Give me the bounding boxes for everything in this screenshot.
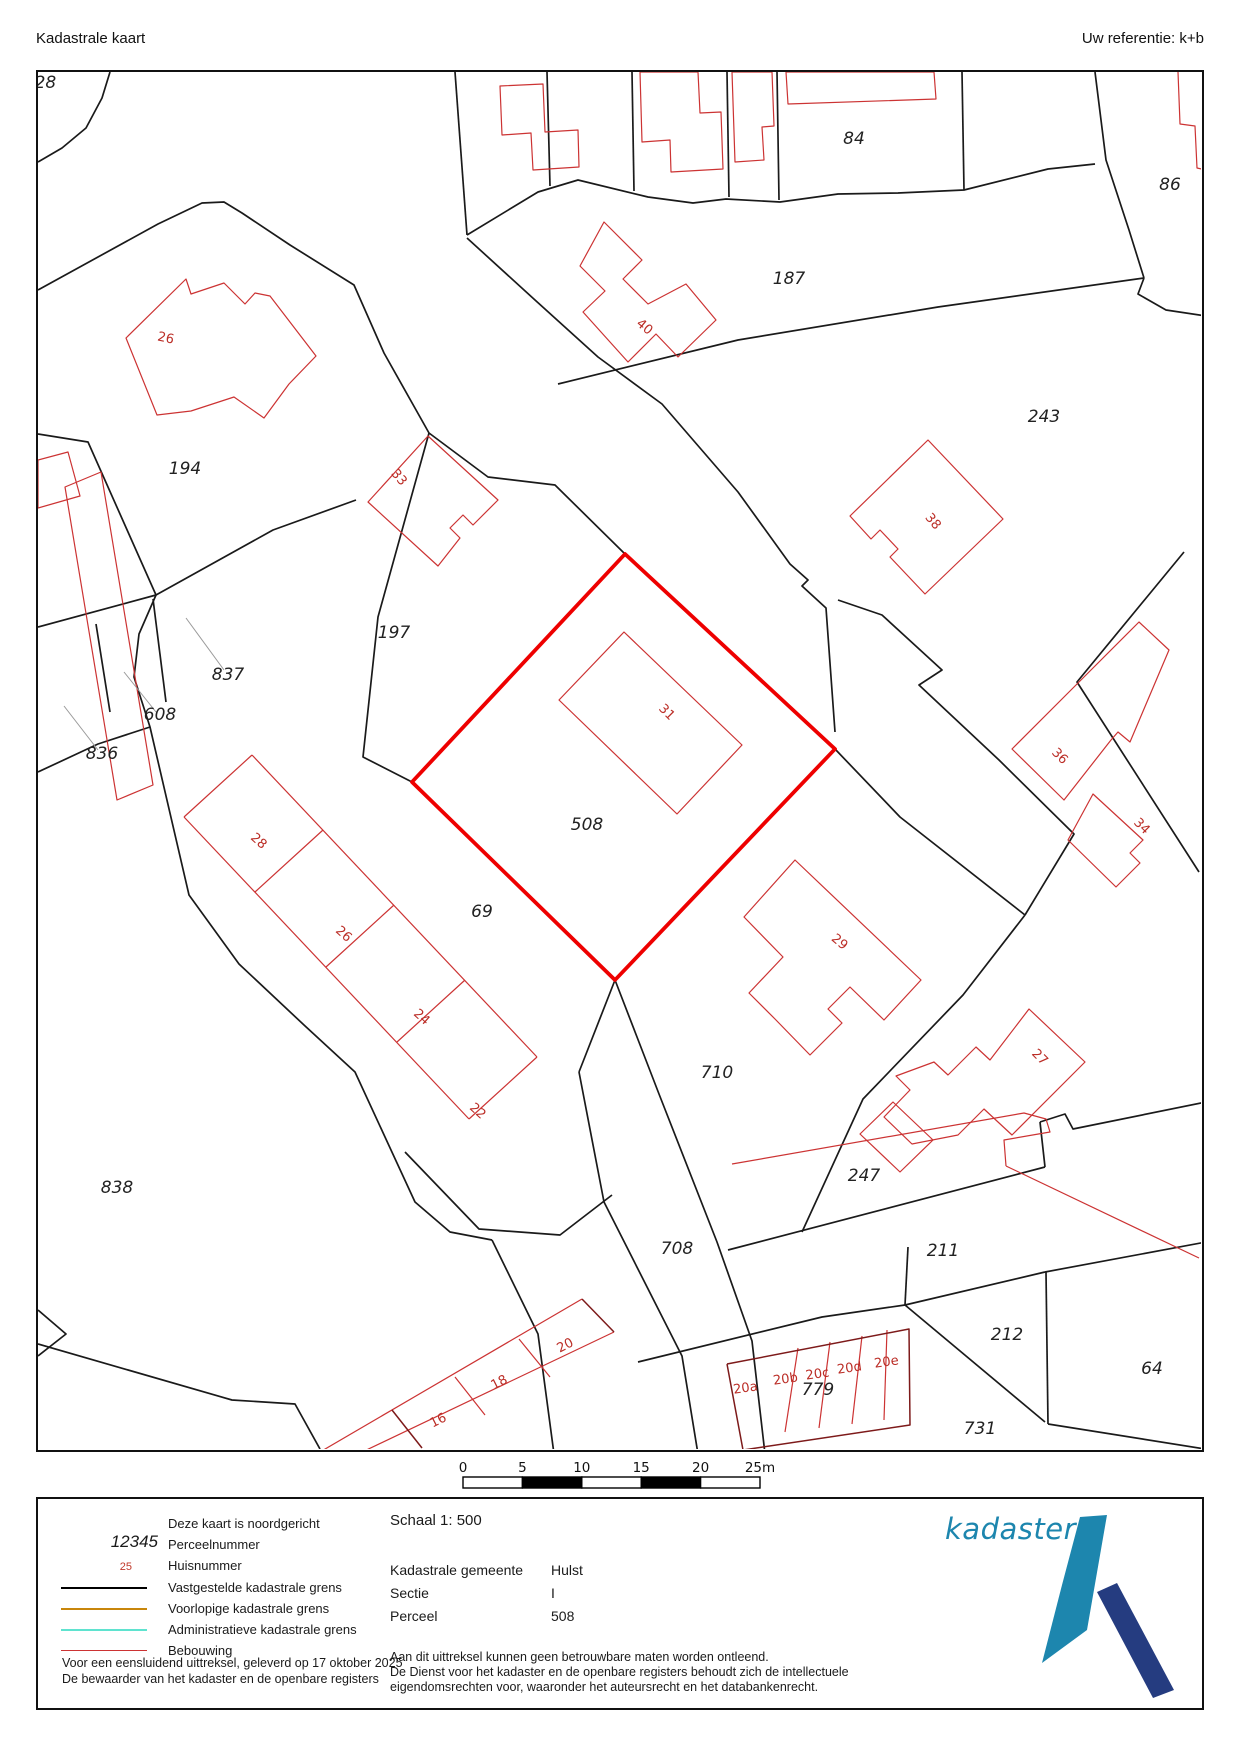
parcel-boundary [38, 434, 156, 595]
parcel-boundary [727, 72, 729, 197]
cadastral-map: 9281941978376088368386950871070824721121… [36, 70, 1204, 1452]
parcel-boundary [1045, 1242, 1201, 1272]
parcel-boundary [579, 980, 615, 1072]
house-number-label: 20d [836, 1359, 863, 1377]
building-outline [580, 222, 716, 362]
building-outline [519, 1339, 550, 1377]
building-outline [252, 755, 537, 1057]
legend-line-label: Administratieve kadastrale grens [168, 1622, 357, 1637]
north-note: Deze kaart is noordgericht [168, 1516, 320, 1531]
house-number-label: 33 [388, 467, 410, 489]
parcel-number-label: 212 [991, 1325, 1023, 1345]
house-number-label: 20b [772, 1370, 799, 1388]
building-outline [732, 72, 774, 162]
scale-bar-graphic: 0510152025m [0, 1458, 1240, 1496]
kadaster-logo-icon [940, 1500, 1195, 1705]
parcel-boundary [632, 72, 634, 191]
disclaimer-line: eigendomsrechten voor, waaronder het aut… [390, 1680, 818, 1694]
scale-bar-segment [641, 1477, 700, 1488]
parcel-number-sample: 12345 [88, 1532, 158, 1552]
house-number-label: 16 [428, 1410, 450, 1431]
scale-bar-segment [522, 1477, 581, 1488]
parcel-number-label: 837 [212, 665, 245, 685]
parcel-boundary [638, 1305, 905, 1362]
legend-footer-1: Voor een eensluidend uittreksel, gelever… [62, 1656, 403, 1670]
parcel-boundary [615, 980, 765, 1449]
parcel-boundary [1046, 1272, 1048, 1424]
parcel-boundary [96, 624, 110, 712]
scale-bar-segment [701, 1477, 760, 1488]
page-title: Kadastrale kaart [36, 30, 145, 47]
legend-footer-2: De bewaarder van het kadaster en de open… [62, 1672, 379, 1686]
parcel-boundary [153, 599, 166, 702]
scale-bar-tick-label: 20 [692, 1460, 709, 1476]
parcel-number-label: 69 [471, 902, 493, 922]
house-number-label: 26 [332, 923, 354, 945]
parcel-boundary [905, 1272, 1045, 1305]
building-outline [38, 452, 80, 508]
parcel-number-label: 928 [38, 73, 56, 93]
parcel-number-label: 247 [848, 1166, 881, 1186]
building-outline [640, 72, 723, 172]
house-number-label: 29 [828, 931, 850, 953]
building-outline [1068, 794, 1143, 887]
parcel-boundary [1040, 1122, 1045, 1167]
parcel-boundary [134, 595, 492, 1240]
parcel-number-label: 710 [701, 1063, 733, 1083]
parcel-boundary [905, 1247, 908, 1305]
building-outline-dark [582, 1299, 614, 1332]
parcel-boundary [1138, 278, 1201, 316]
building-outline [358, 1332, 614, 1449]
building-outline [368, 436, 498, 566]
info-field-value: 508 [551, 1608, 574, 1624]
building-outline [744, 860, 921, 1055]
legend-line-swatch [61, 1629, 147, 1631]
scale-bar-tick-label: 15 [633, 1460, 650, 1476]
parcel-number-label: Perceelnummer [168, 1537, 260, 1552]
building-outline [184, 817, 469, 1119]
legend-line-swatch [61, 1587, 147, 1589]
disclaimer-line: De Dienst voor het kadaster en de openba… [390, 1665, 849, 1679]
building-outline [1012, 622, 1169, 800]
parcel-number-label: 708 [661, 1239, 694, 1259]
building-outline [852, 1336, 862, 1424]
house-number-sample: 25 [88, 1561, 132, 1573]
parcel-number-label: 194 [169, 459, 201, 479]
parcel-boundary [835, 749, 1025, 915]
parcel-number-label: 197 [378, 623, 411, 643]
parcel-number-label: 84 [843, 129, 865, 149]
building-outline [786, 72, 936, 104]
info-field-key: Perceel [390, 1608, 437, 1624]
scale-bar-segment [463, 1477, 522, 1488]
map-canvas: 9281941978376088368386950871070824721121… [38, 72, 1201, 1449]
building-outline-dark [392, 1410, 422, 1448]
building-outline [126, 279, 316, 418]
info-field-key: Kadastrale gemeente [390, 1562, 523, 1578]
building-outline [1178, 72, 1201, 170]
house-number-label: 27 [1028, 1046, 1050, 1068]
scale-bar-tick-label: 10 [573, 1460, 590, 1476]
building-outline [884, 1009, 1085, 1144]
cadastral-extract-page: { "header": { "title": "Kadastrale kaart… [0, 0, 1240, 1754]
parcel-number-label: 243 [1028, 407, 1060, 427]
parcel-boundary [38, 202, 429, 433]
building-outline [884, 1330, 887, 1420]
parcel-number-label: 608 [144, 705, 177, 725]
parcel-number-label: 731 [964, 1419, 996, 1439]
house-number-label: 40 [633, 316, 655, 338]
building-outline [559, 632, 742, 814]
scale-bar-tick-label: 0 [459, 1460, 468, 1476]
parcel-boundary [405, 1152, 612, 1235]
parcel-number-label: 86 [1159, 175, 1181, 195]
building-outline [785, 1348, 798, 1432]
parcel-number-label: 187 [773, 269, 806, 289]
scale-bar-segment [582, 1477, 641, 1488]
legend-line-label: Voorlopige kadastrale grens [168, 1601, 329, 1616]
building-outline [184, 755, 252, 817]
scale-bar-tick-label: 5 [518, 1460, 527, 1476]
parcel-number-label: 508 [571, 815, 604, 835]
info-field-value: I [551, 1585, 555, 1601]
house-number-label: 28 [247, 830, 269, 852]
building-outline [1006, 1166, 1199, 1258]
parcel-boundary [38, 1310, 66, 1356]
disclaimer-line: Aan dit uittreksel kunnen geen betrouwba… [390, 1650, 769, 1664]
house-number-label: Huisnummer [168, 1558, 242, 1573]
parcel-boundary [38, 1344, 320, 1449]
parcel-boundary [802, 915, 1025, 1232]
kadaster-logo-shape-teal [1042, 1515, 1107, 1663]
legend-line-label: Vastgestelde kadastrale grens [168, 1580, 342, 1595]
parcel-boundary [467, 164, 1095, 235]
house-number-label: 26 [156, 330, 175, 348]
parcel-boundary [455, 72, 467, 235]
house-number-label: 20a [732, 1379, 758, 1397]
building-outline [860, 1102, 933, 1172]
house-number-label: 24 [410, 1006, 432, 1028]
reference-label: Uw referentie: k+b [1082, 30, 1204, 47]
parcel-boundary [838, 600, 1074, 915]
house-number-label: 38 [922, 511, 944, 533]
parcel-boundary [777, 72, 779, 200]
house-number-label: 20e [873, 1353, 899, 1371]
scale-text: Schaal 1: 500 [390, 1512, 482, 1529]
kadaster-logo-shape-navy [1097, 1583, 1174, 1698]
scale-bar: 0510152025m [0, 1458, 1240, 1496]
scale-bar-tick-label: 25m [745, 1460, 775, 1476]
building-outline [397, 980, 465, 1042]
parcel-number-label: 211 [927, 1241, 959, 1261]
parcel-boundary [1040, 1102, 1201, 1129]
label-leader-line [186, 618, 224, 670]
building-outline [500, 84, 579, 170]
building-outline [732, 1113, 1050, 1166]
info-field-key: Sectie [390, 1585, 429, 1601]
parcel-number-label: 64 [1141, 1359, 1163, 1379]
house-number-label: 31 [655, 701, 677, 723]
legend-line-swatch [61, 1650, 147, 1651]
info-field-value: Hulst [551, 1562, 583, 1578]
parcel-boundary [728, 1167, 1045, 1250]
parcel-boundary [1048, 1424, 1201, 1449]
house-number-label: 20 [555, 1335, 577, 1356]
legend-line-swatch [61, 1608, 147, 1610]
parcel-number-label: 838 [101, 1178, 134, 1198]
parcel-boundary [579, 1072, 698, 1449]
house-number-label: 36 [1048, 745, 1070, 767]
parcel-boundary [905, 1305, 1045, 1422]
parcel-number-label: 836 [86, 744, 119, 764]
parcel-boundary [1095, 72, 1144, 278]
house-number-label: 34 [1130, 815, 1152, 837]
parcel-boundary [962, 72, 964, 190]
